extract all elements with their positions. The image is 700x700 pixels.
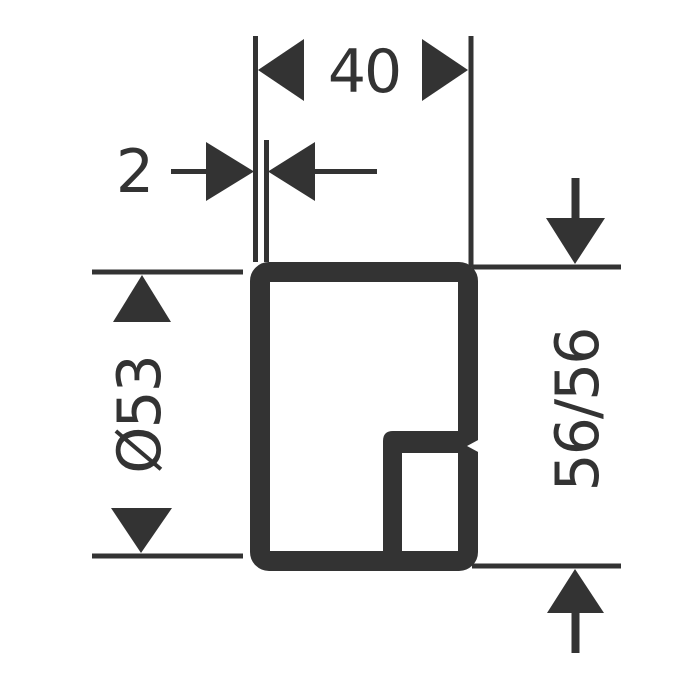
drawing-canvas: 40 2 Ø53 56/56	[0, 0, 700, 700]
dim-diameter-label: Ø53	[105, 356, 175, 474]
arrow-down-icon	[111, 508, 172, 553]
dim-depth-right: 56/56	[472, 178, 621, 653]
arrow-up-icon	[113, 275, 171, 322]
arrow-up-icon	[547, 569, 604, 613]
dim-depth-label: 56/56	[543, 329, 613, 492]
arrow-pointing-right-icon	[206, 142, 254, 201]
dim-width-top-label: 40	[328, 37, 400, 107]
product-outline	[260, 272, 480, 561]
dim-width-top: 40	[256, 36, 472, 267]
arrow-left-icon	[258, 39, 304, 101]
arrow-down-icon	[546, 218, 605, 264]
body-outline	[260, 272, 468, 561]
arrow-right-icon	[422, 39, 468, 101]
dim-wall-offset-label: 2	[116, 137, 152, 207]
arrow-pointing-left-icon	[268, 142, 315, 201]
dim-diameter-left: Ø53	[92, 272, 243, 556]
dim-wall-offset: 2	[116, 137, 377, 262]
